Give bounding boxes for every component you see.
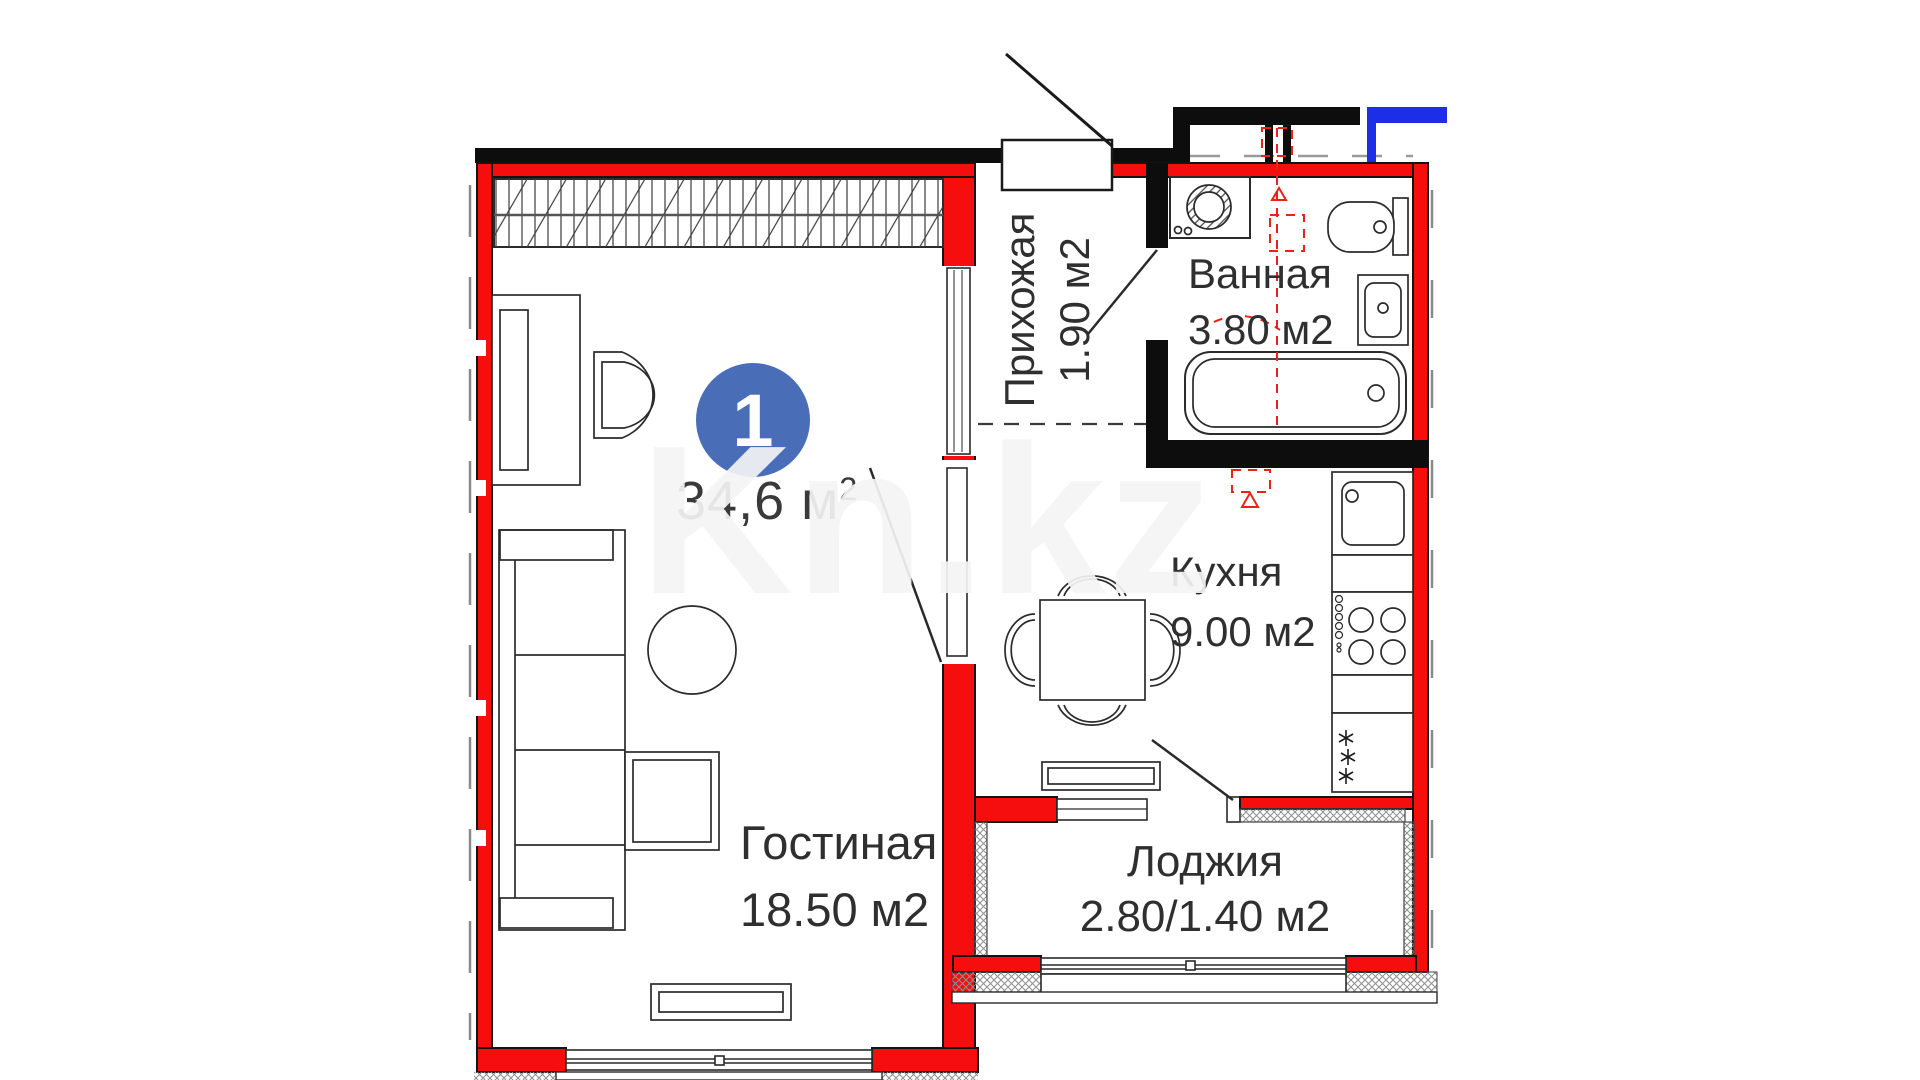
wall-red-top-living [477, 163, 975, 177]
unit-number-badge: 1 [696, 363, 810, 477]
wall-black-bath-upper [1146, 163, 1168, 248]
unit-boundary-blue-bar [1367, 107, 1447, 123]
wall-black-top [475, 148, 1002, 163]
loggia-red-bottom-right [1346, 956, 1416, 972]
fridge-freezer [1332, 713, 1413, 792]
loggia-door-jamb [1227, 797, 1240, 822]
loggia-sill-hatch-left [952, 972, 1041, 992]
loggia-hatch-strip-left [975, 822, 987, 956]
loggia-windows [1041, 958, 1346, 974]
wall-red-left [477, 163, 492, 1060]
wall-red-right [1413, 163, 1428, 972]
label-hallway: Прихожая 1.90 м2 [986, 195, 1110, 425]
living-door-leaf [870, 468, 941, 662]
total-area-label: 34,6 м2 [676, 470, 858, 532]
sill-hatch-2 [872, 1072, 978, 1080]
wall-black-step-low [1112, 148, 1173, 163]
dining-table [1040, 600, 1145, 700]
kitchen-area: 9.00 м2 [1170, 602, 1316, 662]
entrance-door-leaf [1006, 54, 1112, 146]
toilet-tank [1393, 198, 1408, 255]
wall-red-bottom-mid [872, 1048, 978, 1072]
vent-triangle-top [1272, 188, 1286, 200]
loggia-red-band-right [1240, 797, 1413, 809]
sofa-chaise [625, 752, 719, 850]
vent-shaft-wall-1 [1265, 125, 1273, 163]
living-room-name: Гостиная [740, 810, 937, 877]
wall-black-bath-lower [1146, 340, 1168, 440]
loggia-red-corner-left [975, 797, 1057, 822]
stove [1332, 592, 1413, 675]
label-bathroom: Ванная 3.80 м2 [1188, 246, 1334, 359]
total-area-unit: м [785, 471, 839, 531]
loggia-hatch-strip-right [1404, 822, 1414, 956]
kitchen-counter-2 [1332, 675, 1413, 713]
window-sill-living [556, 1072, 882, 1080]
wall-black-step-high [1173, 107, 1360, 125]
living-door-jamb [947, 468, 967, 656]
living-room-area: 18.50 м2 [740, 877, 937, 944]
radiator [1042, 762, 1160, 790]
loggia-red-bottom-left [953, 956, 1041, 972]
floor-plan-drawing [0, 0, 1920, 1080]
loggia-area: 2.80/1.40 м2 [1050, 889, 1360, 944]
total-area-sup: 2 [839, 471, 858, 507]
wall-red-bottom-left [477, 1048, 566, 1072]
wall-black-bath-bottom [1146, 440, 1428, 468]
label-loggia: Лоджия 2.80/1.40 м2 [1050, 834, 1360, 945]
kitchen-name: Кухня [1170, 542, 1316, 602]
loggia-outer-edge [952, 992, 1437, 1003]
riser-box-below-wall [1232, 470, 1270, 492]
loggia-hatch-right [1240, 809, 1405, 822]
sofa [499, 530, 625, 930]
bathtub [1185, 352, 1406, 434]
loggia-name: Лоджия [1050, 834, 1360, 889]
total-area-value: 34,6 [676, 471, 785, 531]
tv-stand [651, 984, 791, 1020]
label-kitchen: Кухня 9.00 м2 [1170, 542, 1316, 661]
partition-window-frame [947, 268, 970, 454]
coffee-table [648, 606, 736, 694]
wall-black-step-leg [1173, 107, 1190, 163]
entrance-door-lintel [1002, 140, 1112, 190]
chair [594, 352, 653, 438]
bathroom-name: Ванная [1188, 246, 1334, 302]
floor-plan-page: 1 34,6 м2 Гостиная 18.50 м2 Прихожая 1.9… [0, 0, 1920, 1080]
sill-hatch-1 [474, 1072, 566, 1080]
vent-shaft-wall-2 [1283, 125, 1291, 163]
desk [492, 295, 580, 485]
hallway-name: Прихожая [993, 213, 1048, 408]
toilet-bowl [1328, 202, 1394, 252]
loggia-sill-hatch-right [1346, 972, 1437, 992]
label-living-room: Гостиная 18.50 м2 [740, 810, 937, 943]
living-window [566, 1050, 872, 1070]
loggia-door-leaf [1152, 740, 1233, 800]
bathroom-area: 3.80 м2 [1188, 302, 1334, 358]
vent-triangle-bottom [1242, 493, 1258, 507]
hallway-area: 1.90 м2 [1048, 237, 1103, 383]
kitchen-counter-1 [1332, 555, 1413, 592]
